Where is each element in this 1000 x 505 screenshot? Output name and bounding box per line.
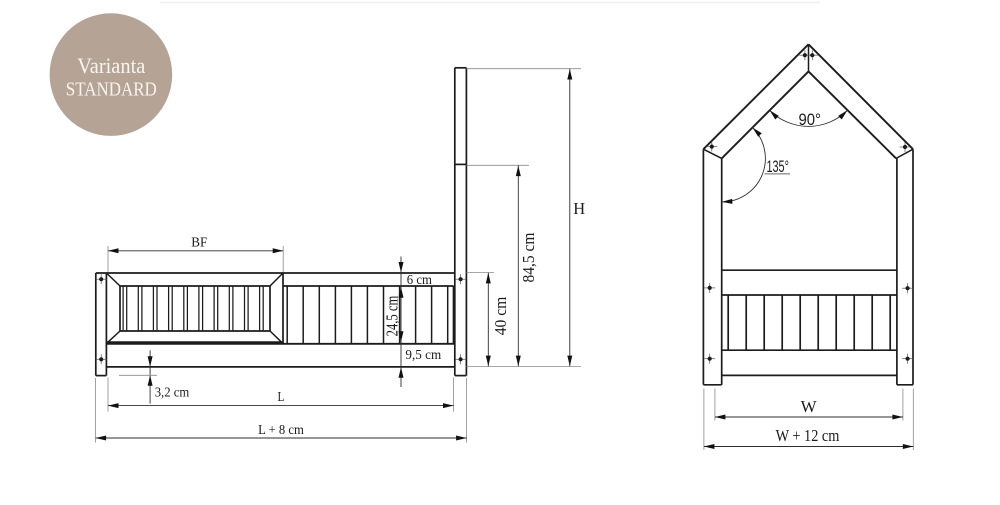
svg-text:L + 8 cm: L + 8 cm: [258, 422, 304, 437]
svg-text:H: H: [573, 199, 585, 218]
svg-text:24,5 cm: 24,5 cm: [383, 296, 402, 337]
svg-text:84,5 cm: 84,5 cm: [519, 233, 538, 283]
svg-text:BF: BF: [191, 235, 207, 250]
svg-text:Varianta: Varianta: [77, 53, 145, 78]
svg-text:90°: 90°: [798, 110, 821, 129]
svg-text:W + 12 cm: W + 12 cm: [776, 426, 840, 445]
svg-text:9,5 cm: 9,5 cm: [405, 347, 441, 362]
svg-text:6 cm: 6 cm: [407, 272, 432, 287]
svg-text:STANDARD: STANDARD: [66, 80, 157, 101]
svg-text:3,2 cm: 3,2 cm: [155, 384, 190, 399]
svg-text:135°: 135°: [766, 157, 789, 176]
svg-text:W: W: [801, 397, 818, 416]
svg-text:40 cm: 40 cm: [491, 297, 510, 336]
svg-text:L: L: [278, 389, 285, 404]
